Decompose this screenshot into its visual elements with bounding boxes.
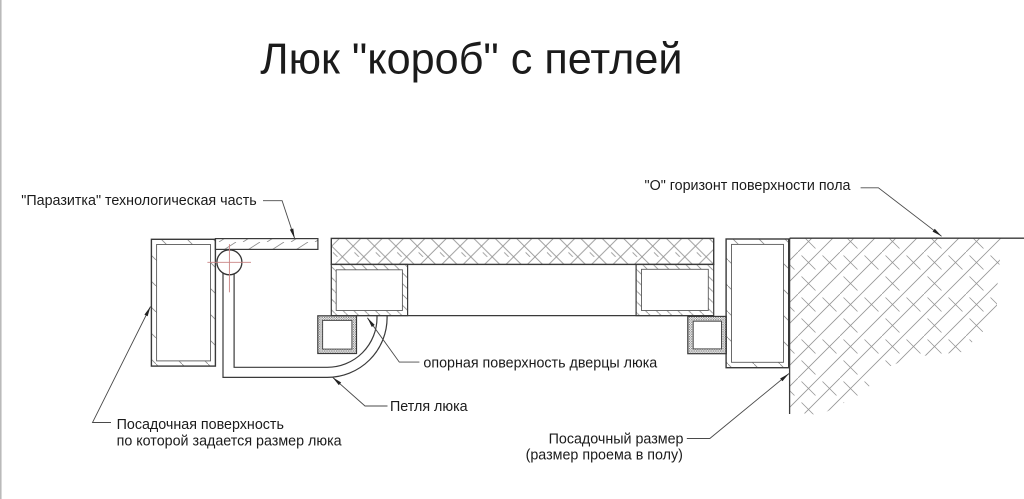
- svg-text:(размер проема в полу): (размер проема в полу): [526, 448, 683, 464]
- svg-text:Посадочная поверхность: Посадочная поверхность: [117, 417, 284, 433]
- svg-text:Люк "короб" с петлей: Люк "короб" с петлей: [260, 35, 682, 83]
- svg-text:"О" горизонт поверхности пола: "О" горизонт поверхности пола: [645, 178, 851, 194]
- svg-text:по которой задается размер люк: по которой задается размер люка: [117, 434, 342, 450]
- svg-text:Петля люка: Петля люка: [390, 399, 468, 415]
- svg-text:опорная поверхность дверцы люк: опорная поверхность дверцы люка: [423, 356, 657, 372]
- svg-text:"Паразитка" технологическая ча: "Паразитка" технологическая часть: [21, 193, 256, 209]
- svg-text:Посадочный размер: Посадочный размер: [549, 431, 684, 447]
